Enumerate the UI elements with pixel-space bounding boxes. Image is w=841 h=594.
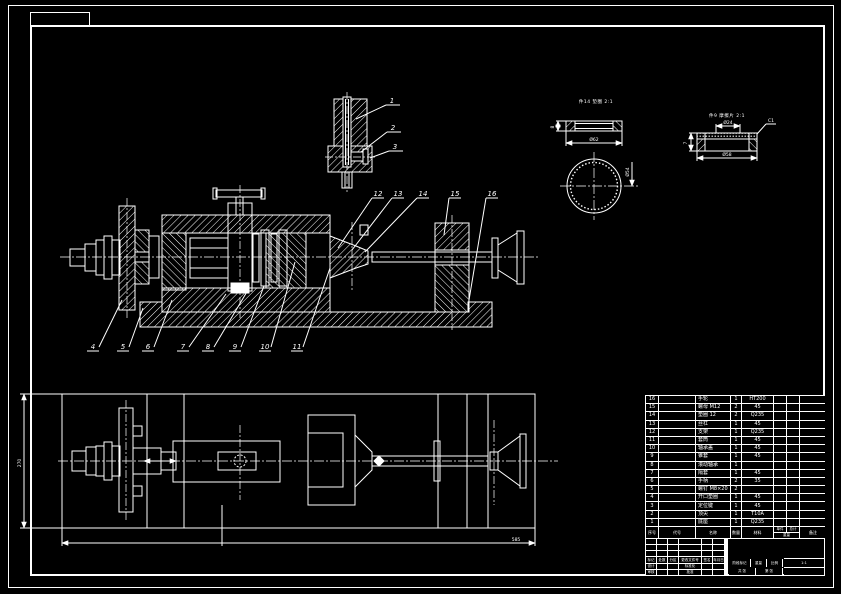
plan-view xyxy=(20,394,558,546)
callout-15: 15 xyxy=(451,190,460,198)
detail-washer-circle xyxy=(560,152,640,220)
bom-cell xyxy=(800,486,826,493)
bom-cell xyxy=(787,502,799,509)
detail-b-label: 件9 摩擦片 2:1 xyxy=(709,112,745,119)
bom-cell xyxy=(774,404,786,411)
bom-cell xyxy=(787,412,799,419)
bom-cell xyxy=(787,421,799,428)
bom-cell: HT200 xyxy=(742,396,773,403)
bom-cell xyxy=(774,486,786,493)
bom-cell: 1 xyxy=(731,511,741,518)
bom-cell: 1 xyxy=(731,429,741,436)
bom-cell xyxy=(800,429,826,436)
bom-cell: 1 xyxy=(731,396,741,403)
bom-cell xyxy=(800,502,826,509)
bom-cell xyxy=(787,511,799,518)
bom-cell: 隔套 xyxy=(696,470,730,477)
titleblock-sheet-row: 共 张 第 张 xyxy=(729,568,783,575)
bom-cell xyxy=(774,429,786,436)
bom-cell: 16 xyxy=(646,396,658,403)
bom-cell xyxy=(774,412,786,419)
bom-cell xyxy=(774,445,786,452)
callout-16: 16 xyxy=(488,190,497,198)
bom-header-note: 备注 xyxy=(800,527,826,538)
bom-cell: 45 xyxy=(742,404,773,411)
bom-cell xyxy=(659,486,695,493)
bom-cell: 2 xyxy=(731,486,741,493)
bom-cell xyxy=(800,412,826,419)
bom-cell xyxy=(659,429,695,436)
tb-approve: 批准 xyxy=(679,570,701,575)
bom-cell: 14 xyxy=(646,412,658,419)
bom-cell: 螺钉 M8×20 xyxy=(696,486,730,493)
callout-6: 6 xyxy=(146,343,151,351)
tb-check: 审核 xyxy=(646,570,656,575)
bom-header-name: 名称 xyxy=(696,527,730,538)
bom-cell: 5 xyxy=(646,486,658,493)
bom-cell: 螺母 M12 xyxy=(696,404,730,411)
callout-7: 7 xyxy=(181,343,186,351)
tb-doc: 更改文件号 xyxy=(679,557,701,562)
bom-cell xyxy=(774,511,786,518)
tb-page: 第 张 xyxy=(756,568,782,575)
bom-cell: 8 xyxy=(646,462,658,469)
bom-cell: 手轮 xyxy=(696,396,730,403)
callout-14: 14 xyxy=(419,190,428,198)
bom-cell: 45 xyxy=(742,421,773,428)
title-block: 标记 处数 分区 更改文件号 签名 年月日 设计 标准化 审核 批准 阶段标记 … xyxy=(645,538,825,576)
titleblock-name-box xyxy=(729,539,783,558)
bom-cell xyxy=(659,445,695,452)
bom-cell xyxy=(774,502,786,509)
bom-cell: 锥套 xyxy=(696,453,730,460)
bom-header-qty: 数量 xyxy=(731,527,741,538)
callout-2: 2 xyxy=(391,124,396,132)
bom-cell xyxy=(800,511,826,518)
bom-cell xyxy=(659,453,695,460)
bom-cell: 滚动轴承 xyxy=(696,462,730,469)
bom-table: 16手轮1HT20015螺母 M1224514垫圈 122Q23513丝杠145… xyxy=(645,395,825,527)
bom-cell xyxy=(800,445,826,452)
callout-9: 9 xyxy=(233,343,238,351)
titleblock-revision-grid: 标记 处数 分区 更改文件号 签名 年月日 设计 标准化 审核 批准 xyxy=(646,539,728,575)
bom-cell xyxy=(659,462,695,469)
bom-cell xyxy=(774,396,786,403)
drawing-sheet: 1 2 3 xyxy=(0,0,841,594)
bom-cell xyxy=(742,462,773,469)
bom-cell: Q235 xyxy=(742,429,773,436)
bom-cell: 11 xyxy=(646,437,658,444)
bom-cell: 45 xyxy=(742,445,773,452)
bom-cell: 1 xyxy=(731,519,741,526)
detail-friction-section xyxy=(689,124,776,161)
bom-cell xyxy=(774,437,786,444)
bom-cell: 支架 xyxy=(696,429,730,436)
bom-cell: 10 xyxy=(646,445,658,452)
tb-weight: 重量 xyxy=(751,559,766,567)
dim-a-thickness: 8 xyxy=(550,125,556,128)
bom-cell: 2 xyxy=(646,511,658,518)
tb-sheets: 共 张 xyxy=(729,568,755,575)
callout-3: 3 xyxy=(393,143,397,151)
bom-cell xyxy=(800,519,826,526)
bom-cell: 垫圈 12 xyxy=(696,412,730,419)
callout-12: 12 xyxy=(374,190,383,198)
bom-cell: 1 xyxy=(731,470,741,477)
dim-plan-width: 270 xyxy=(17,459,23,468)
bom-cell: 7 xyxy=(646,470,658,477)
dim-a-od: Ø62 xyxy=(589,136,598,143)
bom-cell xyxy=(787,486,799,493)
detail-a-label: 件14 垫圈 2:1 xyxy=(579,98,613,105)
main-assembly-view xyxy=(60,185,540,351)
callout-11: 11 xyxy=(293,343,302,351)
bom-cell xyxy=(787,462,799,469)
bom-cell: 1 xyxy=(731,437,741,444)
tb-design: 设计 xyxy=(646,564,656,569)
bom-cell: 45 xyxy=(742,502,773,509)
bom-header-total: 总计 xyxy=(787,527,799,532)
tb-zone: 分区 xyxy=(668,557,678,562)
bom-cell xyxy=(787,396,799,403)
bom-cell: 丝杠 xyxy=(696,421,730,428)
bom-header-code: 代号 xyxy=(659,527,695,538)
bom-cell: Q235 xyxy=(742,519,773,526)
bom-cell xyxy=(774,421,786,428)
bom-cell: 1 xyxy=(731,494,741,501)
bom-cell: 13 xyxy=(646,421,658,428)
bom-cell: 2 xyxy=(731,478,741,485)
bom-cell: 1 xyxy=(646,519,658,526)
bom-cell xyxy=(800,470,826,477)
bom-cell: 手柄 xyxy=(696,478,730,485)
bom-cell xyxy=(800,404,826,411)
bom-cell: 4 xyxy=(646,494,658,501)
bom-cell: 45 xyxy=(742,437,773,444)
bom-cell xyxy=(800,453,826,460)
tb-stage: 阶段标记 xyxy=(729,559,750,567)
bom-cell: 35 xyxy=(742,478,773,485)
bom-cell: 开口垫圈 xyxy=(696,494,730,501)
bom-cell xyxy=(787,519,799,526)
bom-cell xyxy=(800,494,826,501)
dim-a-id: Ø54 xyxy=(624,167,631,176)
bom-cell xyxy=(774,453,786,460)
dim-b-thickness: 7 xyxy=(683,141,689,144)
bom-cell xyxy=(787,445,799,452)
bom-cell xyxy=(774,494,786,501)
bom-cell: 1 xyxy=(731,502,741,509)
bom-header-unit: 单件 xyxy=(774,527,786,532)
bom-cell xyxy=(787,437,799,444)
callout-13: 13 xyxy=(394,190,403,198)
callout-1: 1 xyxy=(390,97,394,105)
tb-standard: 标准化 xyxy=(679,564,701,569)
bom-cell: 1 xyxy=(731,462,741,469)
bom-cell: 3 xyxy=(646,502,658,509)
callout-10: 10 xyxy=(261,343,270,351)
bom-cell xyxy=(659,470,695,477)
bom-cell: 2 xyxy=(731,412,741,419)
tb-sign: 签名 xyxy=(702,557,712,562)
bom-cell: 1 xyxy=(731,421,741,428)
bom-cell: 轴承盖 xyxy=(696,445,730,452)
bom-cell xyxy=(787,429,799,436)
bom-header-weight-group: 单件 总计 重量 xyxy=(774,527,799,538)
bom-cell: Q235 xyxy=(742,412,773,419)
bom-cell xyxy=(659,412,695,419)
bom-cell xyxy=(659,511,695,518)
dim-b-chamfer: C1 xyxy=(768,118,774,124)
bom-cell xyxy=(659,437,695,444)
bom-cell xyxy=(800,396,826,403)
titleblock-right-column: 1:1 xyxy=(784,539,824,575)
bom-cell xyxy=(787,478,799,485)
dim-b-top: Ø24 xyxy=(723,119,732,126)
bom-cell: 15 xyxy=(646,404,658,411)
bom-cell xyxy=(659,396,695,403)
bom-cell: 9 xyxy=(646,453,658,460)
bom-cell: 6 xyxy=(646,478,658,485)
bom-cell: 1 xyxy=(731,453,741,460)
bom-cell xyxy=(659,404,695,411)
bom-cell: 底座 xyxy=(696,519,730,526)
callout-5: 5 xyxy=(121,343,126,351)
bom-cell xyxy=(787,494,799,501)
bom-header-no: 序号 xyxy=(646,527,658,538)
bom-cell xyxy=(800,437,826,444)
bom-cell: 12 xyxy=(646,429,658,436)
bom-header-mat: 材料 xyxy=(742,527,773,538)
tb-drawing-name xyxy=(729,539,783,558)
bom-cell xyxy=(774,462,786,469)
bom-cell xyxy=(800,462,826,469)
bom-cell: 45 xyxy=(742,470,773,477)
bom-cell xyxy=(774,519,786,526)
bom-cell: T10A xyxy=(742,511,773,518)
bom-cell xyxy=(774,478,786,485)
tb-count: 处数 xyxy=(657,557,667,562)
tb-date: 年月日 xyxy=(713,557,724,562)
callout-4: 4 xyxy=(91,343,95,351)
tb-scale-value: 1:1 xyxy=(784,559,824,567)
bom-cell xyxy=(800,478,826,485)
bom-cell: 45 xyxy=(742,453,773,460)
bom-header: 序号 代号 名称 数量 材料 单件 总计 重量 备注 xyxy=(645,527,825,538)
dim-b-bottom: Ø58 xyxy=(722,151,731,158)
bom-cell: 套筒 xyxy=(696,437,730,444)
bom-cell xyxy=(800,421,826,428)
bom-cell xyxy=(742,486,773,493)
bom-cell xyxy=(659,421,695,428)
bom-cell xyxy=(787,470,799,477)
bom-cell xyxy=(774,470,786,477)
bom-cell: 45 xyxy=(742,494,773,501)
bom-cell xyxy=(659,494,695,501)
bom-cell: 顶尖 xyxy=(696,511,730,518)
bom-cell xyxy=(659,502,695,509)
bom-cell: 1 xyxy=(731,445,741,452)
bom-cell: 2 xyxy=(731,404,741,411)
bom-cell xyxy=(659,519,695,526)
detail-pin-view xyxy=(325,92,403,192)
bom-cell xyxy=(787,404,799,411)
tb-code-box xyxy=(784,539,824,558)
bom-cell xyxy=(787,453,799,460)
titleblock-stage-row: 阶段标记 重量 比例 xyxy=(729,559,783,567)
tb-scale: 比例 xyxy=(767,559,782,567)
callout-8: 8 xyxy=(206,343,211,351)
bom-cell: 定位键 xyxy=(696,502,730,509)
tb-mark: 标记 xyxy=(646,557,656,562)
bom-cell xyxy=(659,478,695,485)
dim-plan-length: 585 xyxy=(512,537,521,543)
